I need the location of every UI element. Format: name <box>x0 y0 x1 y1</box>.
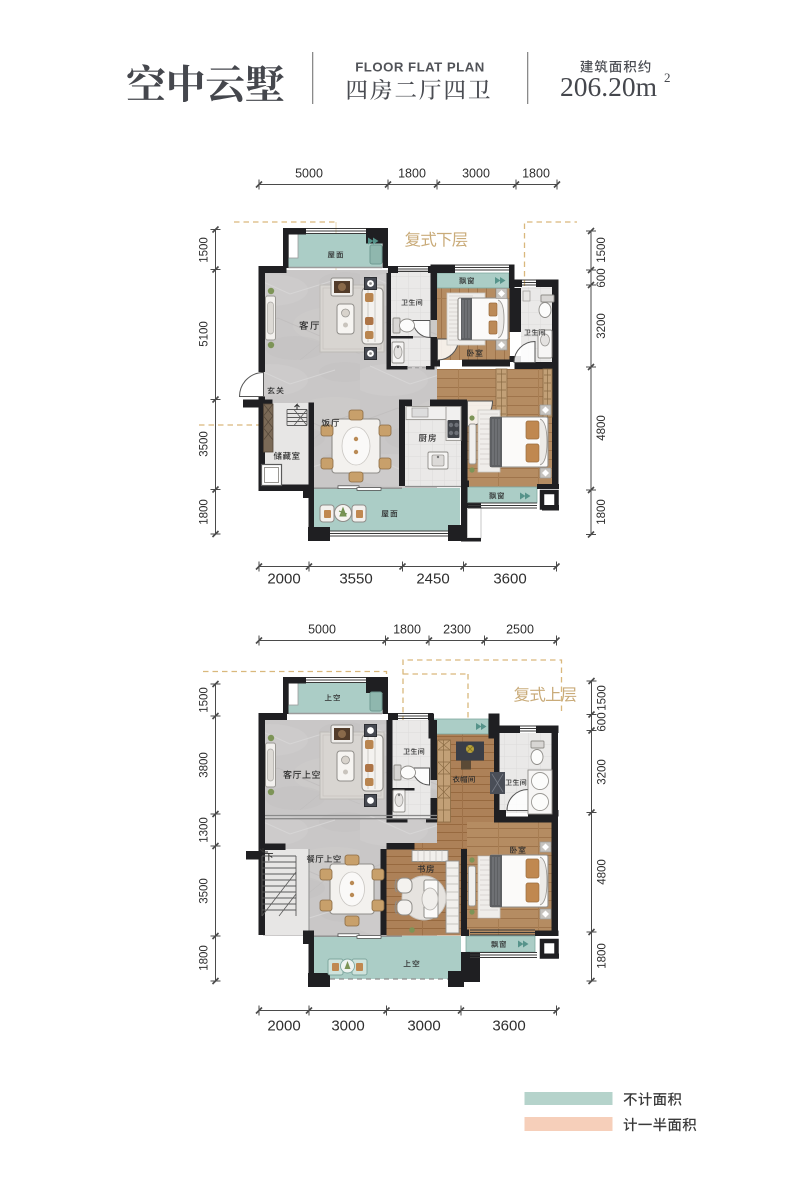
svg-text:3200: 3200 <box>597 759 609 785</box>
svg-text:3500: 3500 <box>199 878 211 904</box>
svg-text:1800: 1800 <box>522 167 550 181</box>
svg-text:1500: 1500 <box>597 685 609 711</box>
svg-text:3000: 3000 <box>462 167 490 181</box>
svg-text:600: 600 <box>597 712 609 731</box>
svg-text:1800: 1800 <box>596 499 608 525</box>
svg-text:2450: 2450 <box>416 571 449 588</box>
svg-text:FLOOR FLAT PLAN: FLOOR FLAT PLAN <box>355 60 485 75</box>
svg-text:3600: 3600 <box>492 1018 525 1035</box>
svg-text:4800: 4800 <box>597 859 609 885</box>
svg-text:5000: 5000 <box>295 167 323 181</box>
svg-text:1800: 1800 <box>199 499 211 525</box>
svg-text:1300: 1300 <box>199 817 211 843</box>
svg-text:3550: 3550 <box>339 571 372 588</box>
svg-text:600: 600 <box>596 268 608 287</box>
svg-text:2000: 2000 <box>267 571 300 588</box>
svg-text:1500: 1500 <box>596 237 608 263</box>
svg-text:1500: 1500 <box>199 237 211 263</box>
svg-text:1800: 1800 <box>199 945 211 971</box>
svg-text:3200: 3200 <box>596 313 608 339</box>
svg-text:206.20m: 206.20m <box>560 71 657 102</box>
svg-text:3000: 3000 <box>331 1018 364 1035</box>
svg-text:1800: 1800 <box>597 943 609 969</box>
svg-text:2500: 2500 <box>506 623 534 637</box>
svg-text:3000: 3000 <box>407 1018 440 1035</box>
svg-text:3800: 3800 <box>199 752 211 778</box>
svg-text:5000: 5000 <box>308 623 336 637</box>
svg-text:2: 2 <box>664 70 671 85</box>
svg-text:2000: 2000 <box>267 1018 300 1035</box>
svg-text:3500: 3500 <box>199 431 211 457</box>
svg-text:4800: 4800 <box>596 415 608 441</box>
svg-text:1800: 1800 <box>393 623 421 637</box>
svg-text:1800: 1800 <box>398 167 426 181</box>
svg-text:1500: 1500 <box>199 687 211 713</box>
svg-text:5100: 5100 <box>199 321 211 347</box>
svg-text:3600: 3600 <box>493 571 526 588</box>
svg-text:2300: 2300 <box>443 623 471 637</box>
